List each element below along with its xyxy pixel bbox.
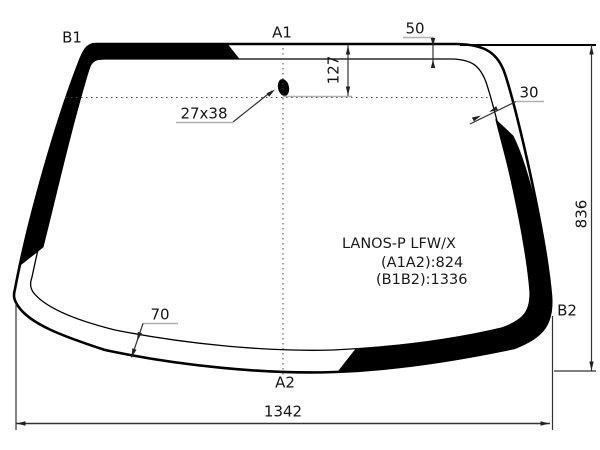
dim-label-27x38: 27x38 [180,107,227,122]
windshield-diagram: АВТОТРЕЙД [0,0,600,450]
dim-label-836: 836 [575,200,590,229]
dim-label-127: 127 [327,56,342,85]
part-dim-b1b2: (B1B2):1336 [376,273,467,288]
part-dim-a1a2: (A1A2):824 [381,256,463,271]
dim-label-30: 30 [519,86,538,101]
windshield-diagram-svg [0,0,600,450]
part-name: LANOS-P LFW/X [342,237,456,252]
dim-label-50: 50 [405,22,424,37]
dim-label-70: 70 [150,308,169,323]
dim-label-1342: 1342 [264,405,302,420]
label-b1: B1 [62,31,82,46]
label-b2: B2 [557,304,577,319]
label-a2: A2 [275,376,295,391]
label-a1: A1 [272,26,292,41]
